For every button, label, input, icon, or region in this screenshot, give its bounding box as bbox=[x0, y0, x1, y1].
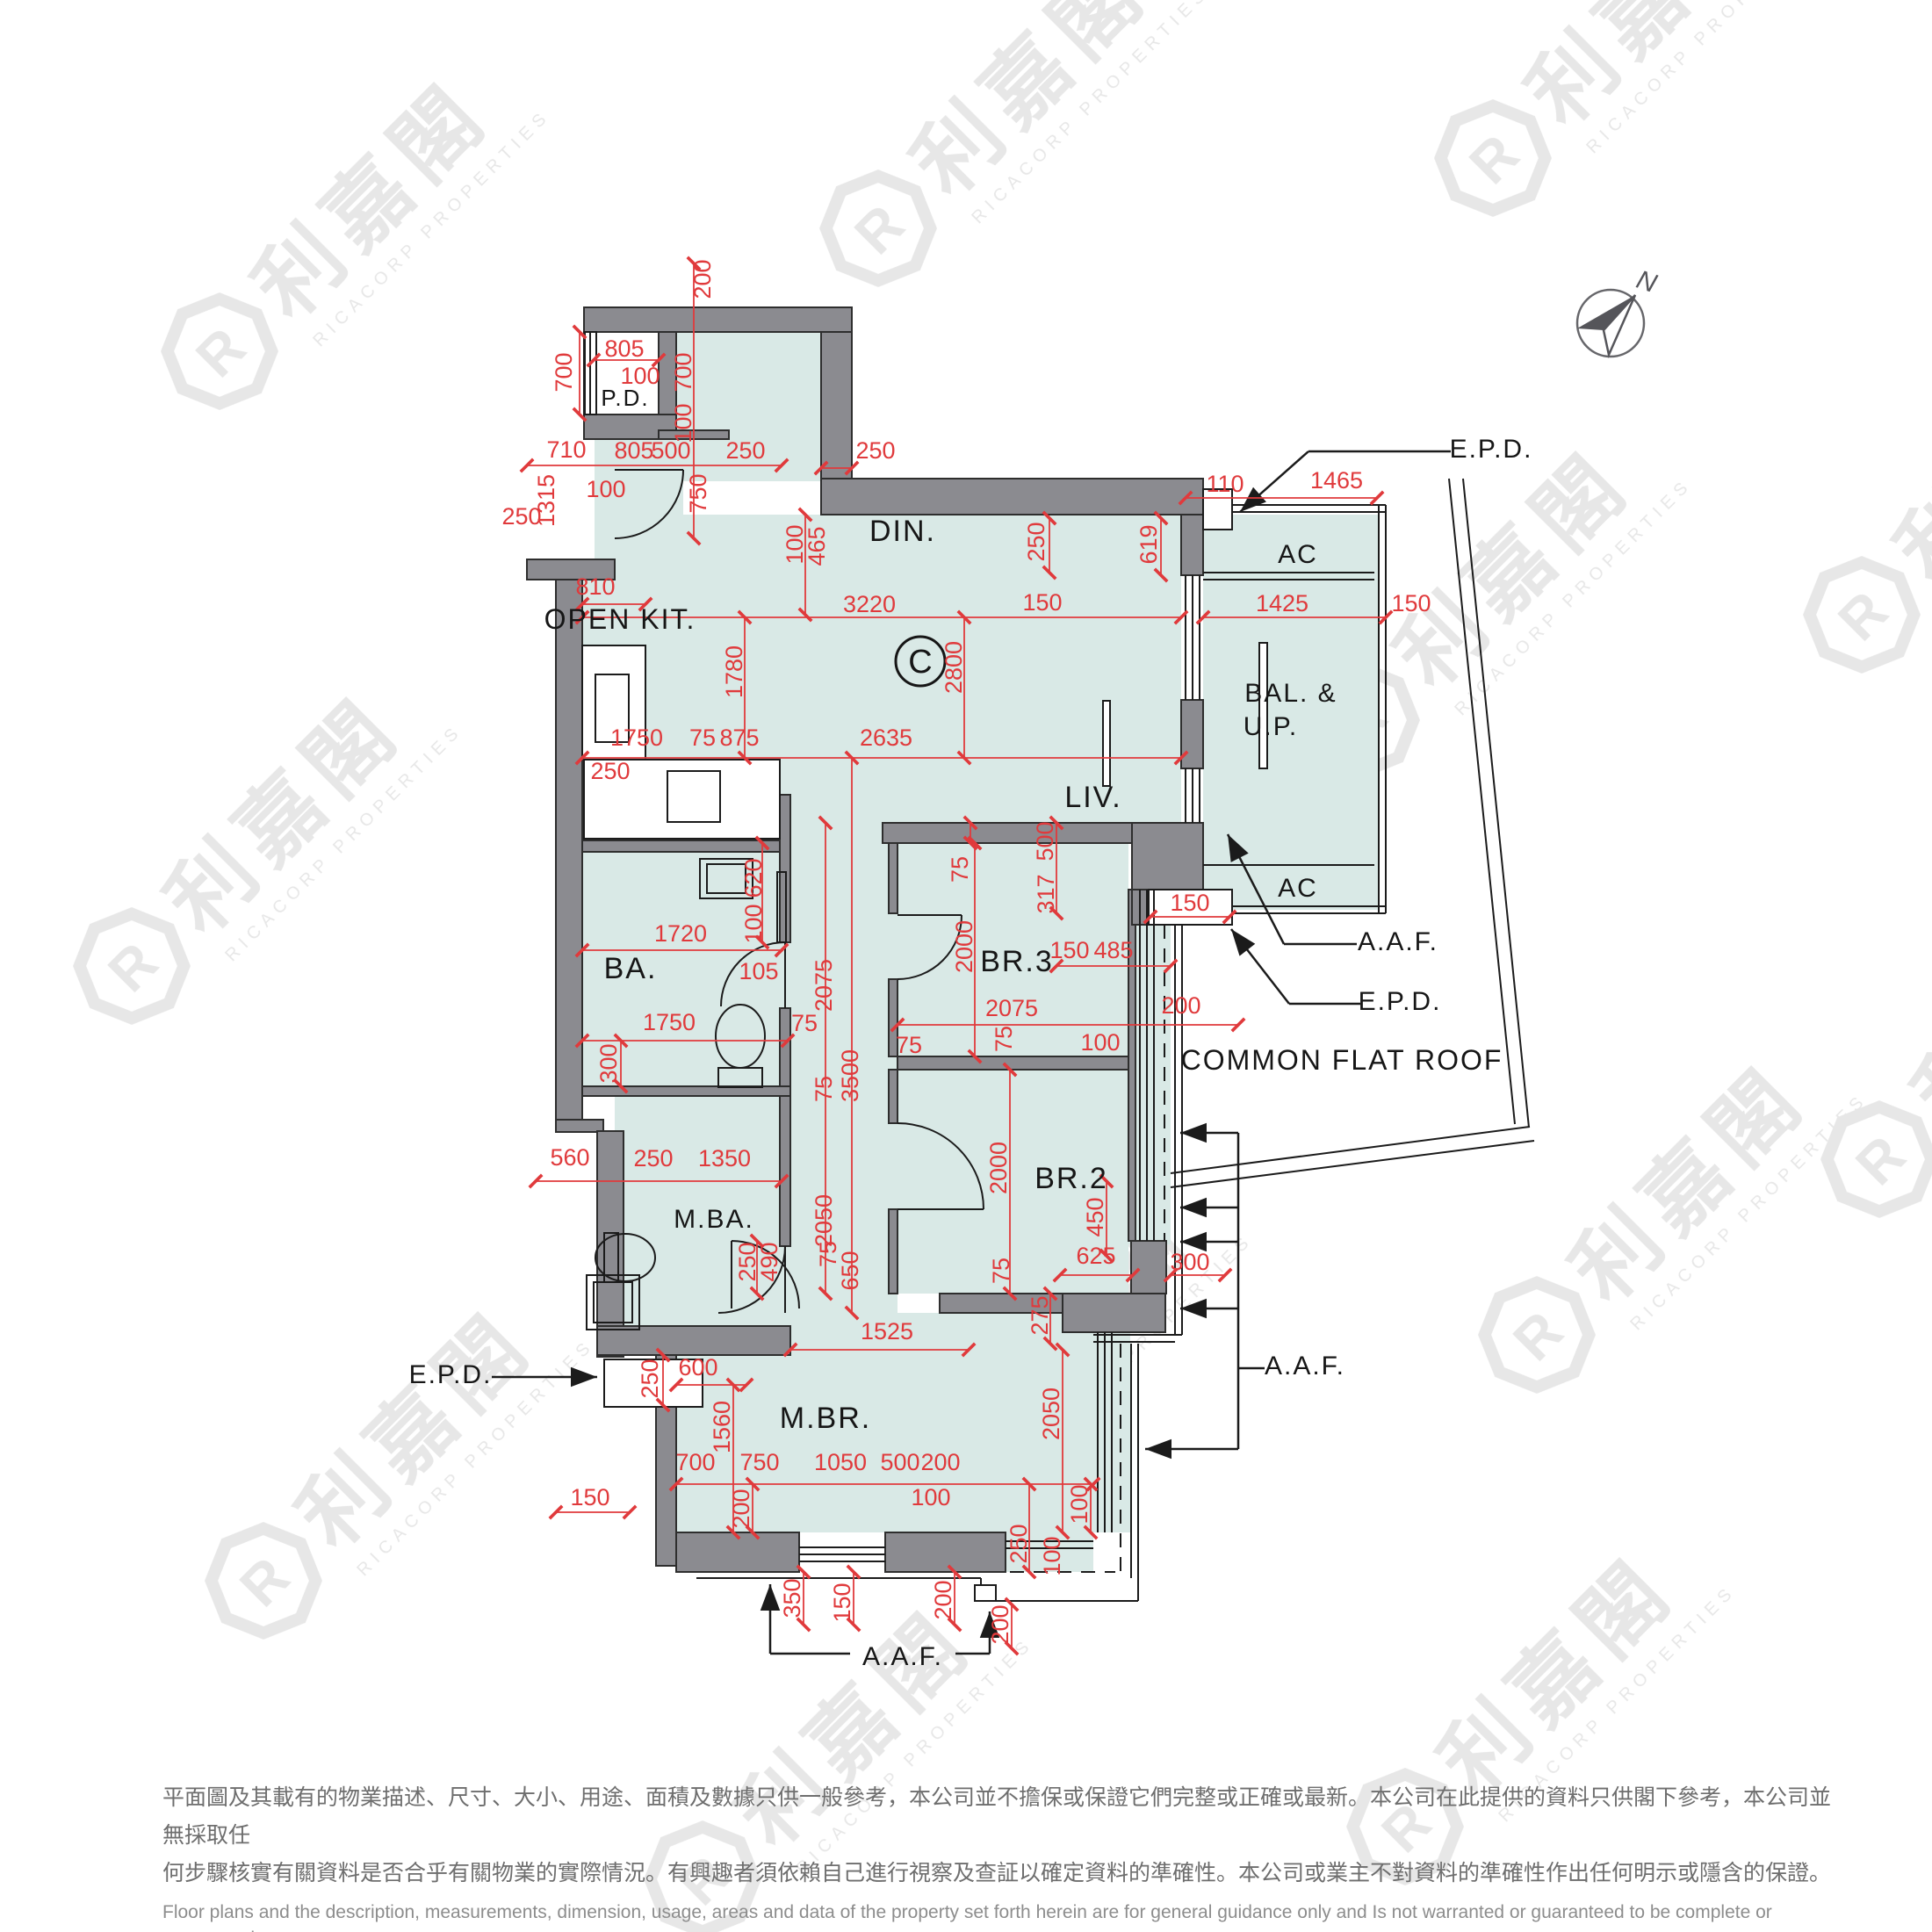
ricacorp-logo-letter: R bbox=[228, 1546, 302, 1619]
room-label: OPEN KIT. bbox=[544, 603, 696, 635]
ricacorp-watermark: R利嘉閣RICACORP PROPERTIES bbox=[1418, 0, 1827, 247]
annotation-label: A.A.F. bbox=[1358, 927, 1438, 956]
dimension-label: 75 bbox=[947, 856, 973, 883]
annotation-label: A.A.F. bbox=[1265, 1352, 1345, 1381]
dimension-label: 3500 bbox=[837, 1049, 863, 1102]
floor-plan: R利嘉閣RICACORP PROPERTIESR利嘉閣RICACORP PROP… bbox=[0, 0, 1932, 1932]
dimension-label: 150 bbox=[1170, 890, 1209, 916]
ricacorp-logo-letter: R bbox=[97, 931, 170, 1005]
dimension-label: 2000 bbox=[951, 920, 977, 973]
room-label: P.D. bbox=[601, 385, 649, 411]
dimension-label: 100 bbox=[586, 476, 625, 502]
dimension-label: 2075 bbox=[985, 995, 1038, 1021]
annotation-label: A.A.F. bbox=[862, 1642, 943, 1671]
dimension-label: 200 bbox=[1161, 992, 1200, 1019]
dimension-label: 620 bbox=[740, 858, 767, 898]
room-label: AC bbox=[1278, 874, 1318, 903]
room-label: BA. bbox=[604, 952, 658, 985]
dimension-label: 250 bbox=[1006, 1524, 1032, 1563]
dimension-label: 150 bbox=[1049, 937, 1089, 963]
unit-label: C bbox=[908, 644, 932, 681]
disclaimer-zh-line2: 何步驟核實有關資料是否合乎有關物業的實際情況。有興趣者須依賴自己進行視察及查証以… bbox=[162, 1855, 1831, 1892]
dimension-label: 75 bbox=[689, 724, 716, 751]
dimension-label: 317 bbox=[1033, 874, 1059, 913]
annotation-label: E.P.D. bbox=[409, 1360, 493, 1389]
dimension-label: 1350 bbox=[698, 1145, 751, 1171]
dimension-label: 1525 bbox=[861, 1318, 913, 1344]
room-label: BR.2 bbox=[1034, 1162, 1108, 1195]
ricacorp-logo-letter: R bbox=[184, 316, 258, 390]
room-label: M.BR. bbox=[780, 1402, 871, 1435]
ricacorp-logo-letter: R bbox=[1827, 580, 1900, 653]
dimension-label: 2000 bbox=[985, 1142, 1012, 1194]
dimension-label: 490 bbox=[756, 1242, 782, 1281]
dimension-label: 1425 bbox=[1256, 590, 1308, 616]
dimension-label: 75 bbox=[896, 1032, 922, 1058]
room-label: COMMON FLAT ROOF bbox=[1181, 1044, 1503, 1076]
ricacorp-watermark: R利嘉閣RICACORP PROPERTIES bbox=[57, 645, 466, 1055]
dimension-label: 300 bbox=[595, 1043, 622, 1083]
dimension-label: 500 bbox=[651, 437, 690, 464]
dimension-label: 600 bbox=[678, 1354, 717, 1381]
disclaimer-en-line1: Floor plans and the description, measure… bbox=[162, 1900, 1831, 1932]
room-label: AC bbox=[1278, 540, 1318, 569]
dimension-label: 1465 bbox=[1310, 467, 1363, 494]
dimension-label: 1780 bbox=[721, 645, 747, 698]
ricacorp-watermark: R利嘉閣RICACORP PROPERTIES bbox=[804, 0, 1213, 317]
ricacorp-logo-letter: R bbox=[1844, 1124, 1918, 1198]
dimension-label: 500 bbox=[1032, 821, 1058, 861]
dimension-label: 700 bbox=[670, 352, 696, 392]
room-label: LIV. bbox=[1064, 781, 1121, 814]
dimension-label: 100 bbox=[1039, 1536, 1065, 1575]
dimension-label: 250 bbox=[633, 1145, 673, 1171]
room-label: M.BA. bbox=[674, 1205, 754, 1234]
dimension-label: 450 bbox=[1082, 1197, 1108, 1236]
dimension-label: 805 bbox=[604, 335, 644, 362]
annotation-label: E.P.D. bbox=[1450, 435, 1533, 464]
dimension-label: 100 bbox=[782, 524, 808, 564]
floor-plan-page: R利嘉閣RICACORP PROPERTIESR利嘉閣RICACORP PROP… bbox=[0, 0, 1932, 1932]
dimension-label: 300 bbox=[1170, 1249, 1209, 1275]
dimension-label: 200 bbox=[930, 1580, 956, 1619]
ricacorp-logo-letter: R bbox=[1502, 1300, 1575, 1373]
dimension-label: 75 bbox=[991, 1026, 1017, 1052]
dimension-label: 2050 bbox=[811, 1194, 837, 1247]
dimension-label: 200 bbox=[987, 1604, 1013, 1644]
dimension-label: 250 bbox=[855, 437, 895, 464]
dimension-label: 700 bbox=[675, 1449, 715, 1475]
dimension-label: 275 bbox=[1027, 1295, 1053, 1335]
ricacorp-logo-letter: R bbox=[1458, 123, 1532, 197]
watermark-cjk-text: 利嘉閣 bbox=[896, 0, 1167, 213]
room-label: DIN. bbox=[869, 515, 936, 548]
dimension-label: 110 bbox=[1206, 471, 1244, 497]
dimension-label: 100 bbox=[1080, 1029, 1120, 1056]
dimension-label: 2050 bbox=[1038, 1388, 1064, 1440]
disclaimer-zh-line1: 平面圖及其載有的物業描述、尺寸、大小、用途、面積及數據只供一般參考，本公司並不擔… bbox=[162, 1779, 1831, 1855]
dimension-label: 250 bbox=[637, 1359, 663, 1398]
dimension-label: 560 bbox=[550, 1144, 589, 1171]
dimension-label: 700 bbox=[551, 352, 577, 392]
dimension-label: 250 bbox=[590, 758, 630, 784]
dimension-label: 3220 bbox=[843, 591, 896, 617]
ricacorp-watermark: R利嘉閣RICACORP PROPERTIES bbox=[189, 1260, 598, 1669]
dimension-label: 650 bbox=[837, 1251, 863, 1290]
dimension-label: 75 bbox=[988, 1258, 1014, 1284]
dimension-label: 250 bbox=[1023, 522, 1049, 561]
dimension-label: 1720 bbox=[654, 920, 707, 947]
dimension-label: 1750 bbox=[643, 1009, 696, 1035]
dimension-label: 1750 bbox=[610, 724, 663, 751]
room-label: U.P. bbox=[1244, 712, 1298, 741]
dimension-label: 500 bbox=[880, 1449, 919, 1475]
dimension-label: 619 bbox=[1135, 524, 1162, 564]
dimension-label: 750 bbox=[739, 1449, 779, 1475]
watermark-cjk-text: 利嘉閣 bbox=[1897, 872, 1932, 1143]
ricacorp-watermark: R利嘉閣RICACORP PROPERTIES bbox=[1787, 294, 1932, 703]
dimension-label: 250 bbox=[725, 437, 765, 464]
ricacorp-watermark: R利嘉閣RICACORP PROPERTIES bbox=[145, 31, 554, 440]
compass-north-label: N bbox=[1633, 265, 1661, 299]
room-label: BR.3 bbox=[980, 945, 1054, 978]
dimension-label: 810 bbox=[575, 573, 615, 600]
dimension-label: 100 bbox=[911, 1484, 950, 1510]
dimension-label: 2075 bbox=[811, 959, 837, 1012]
dimension-label: 150 bbox=[1391, 590, 1431, 616]
disclaimer-footer: 平面圖及其載有的物業描述、尺寸、大小、用途、面積及數據只供一般參考，本公司並不擔… bbox=[162, 1779, 1831, 1932]
watermark-cjk-text: 利嘉閣 bbox=[1879, 328, 1932, 599]
dimension-label: 1560 bbox=[709, 1401, 735, 1453]
dimension-label: 350 bbox=[779, 1578, 805, 1618]
dimension-label: 875 bbox=[719, 724, 759, 751]
dimension-label: 200 bbox=[728, 1489, 754, 1528]
dimension-label: 710 bbox=[546, 436, 586, 463]
watermark-cjk-text: 利嘉閣 bbox=[1510, 0, 1782, 142]
dimension-label: 105 bbox=[739, 958, 778, 984]
dimension-label: 2800 bbox=[941, 641, 967, 694]
north-compass-icon: N bbox=[1577, 265, 1661, 357]
room-label: BAL. & bbox=[1244, 679, 1337, 708]
dimension-label: 150 bbox=[829, 1582, 855, 1622]
dimension-label: 250 bbox=[501, 503, 541, 530]
dimension-label: 1050 bbox=[814, 1449, 867, 1475]
annotation-label: E.P.D. bbox=[1359, 987, 1442, 1016]
dimension-label: 150 bbox=[570, 1484, 609, 1510]
dimension-label: 100 bbox=[740, 904, 767, 943]
dimension-label: 805 bbox=[614, 437, 653, 464]
dimension-label: 200 bbox=[689, 259, 716, 299]
ricacorp-watermark: R利嘉閣RICACORP PROPERTIES bbox=[1805, 839, 1932, 1248]
dimension-label: 75 bbox=[811, 1076, 837, 1102]
ricacorp-logo-letter: R bbox=[843, 193, 917, 267]
dimension-label: 750 bbox=[685, 473, 711, 513]
dimension-label: 625 bbox=[1076, 1243, 1115, 1269]
dimension-label: 75 bbox=[791, 1010, 818, 1036]
dimension-label: 485 bbox=[1093, 937, 1133, 963]
dimension-label: 200 bbox=[920, 1449, 960, 1475]
dimension-label: 100 bbox=[1066, 1484, 1092, 1524]
dimension-label: 2635 bbox=[860, 724, 912, 751]
dimension-label: 150 bbox=[1022, 589, 1062, 616]
